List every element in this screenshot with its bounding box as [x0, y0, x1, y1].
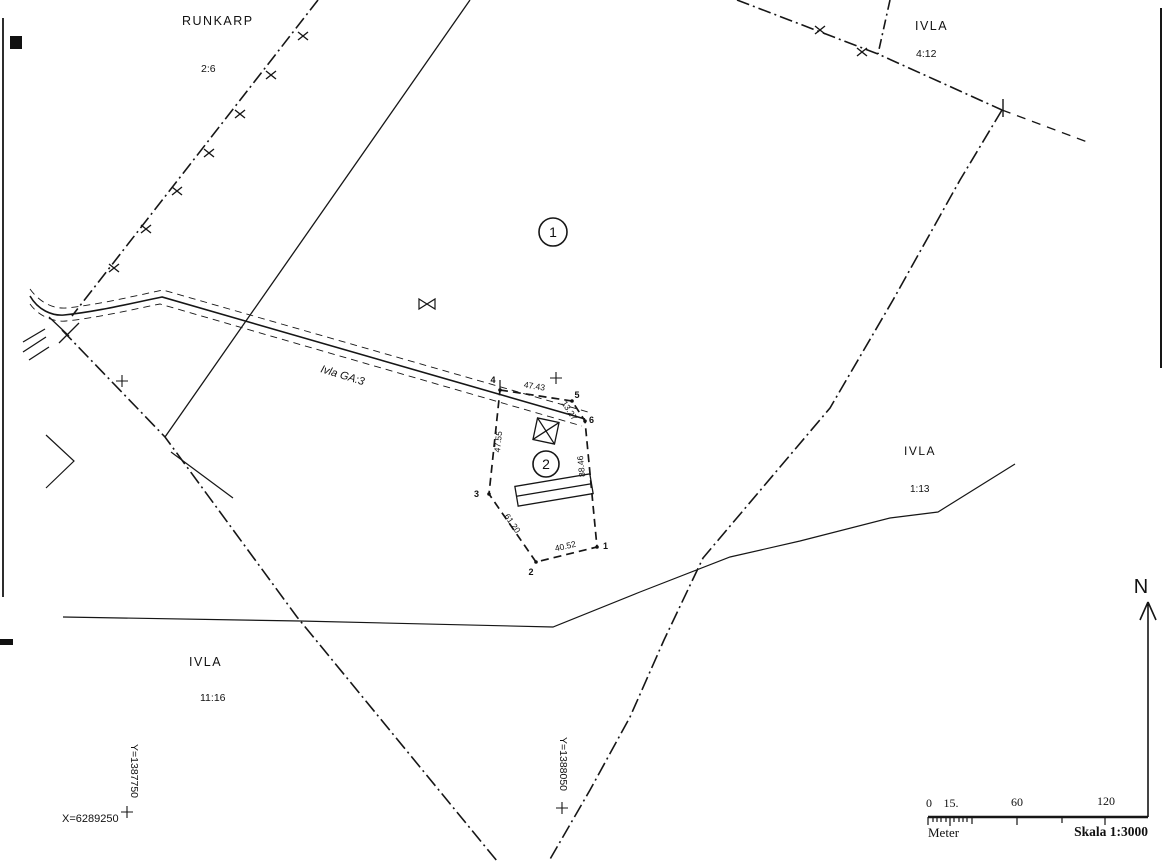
- bowtie-symbol-icon: [419, 299, 435, 309]
- road-edge-south: [30, 304, 582, 426]
- parcel-code-ivla-ne: 4:12: [916, 48, 937, 60]
- vertex-label: 2: [528, 567, 533, 577]
- boundary-east: [549, 110, 1002, 861]
- parcel-code-ivla-sw: 11:16: [200, 692, 226, 704]
- scale-tick-label: 120: [1097, 794, 1115, 808]
- cadastral-map-page: 4 5 6 1 2 3 47.43 13.27 88.46 40.52 61.2…: [0, 0, 1164, 861]
- north-label: N: [1134, 576, 1148, 598]
- edge-length-label: 40.52: [554, 539, 577, 554]
- road-centerline: [30, 296, 585, 419]
- parcel-code-ivla-e: 1:13: [910, 484, 930, 495]
- boundary-northeast-cross-marks: [815, 26, 867, 56]
- scale-tick-label: 60: [1011, 795, 1023, 809]
- edge-length-label: 13.27: [560, 399, 580, 423]
- vertex-label: 1: [603, 541, 608, 551]
- scan-tick: [0, 639, 13, 645]
- edge-length-label: 61.20: [502, 512, 523, 535]
- road-label: Ivla GA:3: [319, 363, 367, 388]
- scan-blob: [10, 36, 22, 49]
- field-line-south: [63, 464, 1015, 627]
- boundary-runkarp: [72, 0, 318, 316]
- vertex-label: 3: [474, 489, 479, 499]
- boundary-continuation-dashed: [1002, 110, 1090, 143]
- boundary-northeast: [737, 0, 1002, 110]
- scale-bar: 0 15. 60 120 Meter Skala 1:3000: [926, 794, 1148, 840]
- scale-unit-label: Meter: [928, 825, 960, 840]
- edge-length-label: 47.55: [492, 430, 504, 452]
- parcel-label-ivla-ne: IVLA: [915, 19, 948, 33]
- boundary-southwest: [62, 330, 497, 861]
- north-arrow: N: [1134, 576, 1156, 817]
- grid-y-east-label: Y=1388050: [557, 737, 569, 791]
- scale-tick-label: 15.: [944, 796, 959, 810]
- well-symbol-icon: [533, 418, 559, 444]
- boundary-northeast-vertical: [878, 0, 890, 54]
- area2-number: 2: [542, 456, 550, 472]
- grid-y-west-label: Y=1387750: [128, 744, 140, 798]
- building-symbol: [515, 474, 593, 506]
- edge-length-label: 47.43: [523, 379, 546, 392]
- north-arrow-icon: [1140, 602, 1156, 817]
- vertex-label: 5: [574, 390, 579, 400]
- parcel-label-runkarp: RUNKARP: [182, 14, 254, 28]
- parcel-code-runkarp: 2:6: [201, 63, 216, 75]
- embankment-icon: [23, 329, 49, 360]
- area1-number: 1: [549, 224, 557, 240]
- parcel-label-ivla-sw: IVLA: [189, 655, 222, 669]
- vertex-label: 4: [490, 375, 495, 385]
- parcel-label-ivla-e: IVLA: [904, 444, 936, 458]
- boundary-parallel-segment: [171, 452, 233, 498]
- vertex-label: 6: [589, 415, 594, 425]
- chevron-mark-icon: [46, 435, 74, 488]
- scale-tick-label: 0: [926, 796, 932, 810]
- grid-x-label: X=6289250: [62, 813, 119, 825]
- cadastral-map: 4 5 6 1 2 3 47.43 13.27 88.46 40.52 61.2…: [0, 0, 1164, 861]
- scale-text-label: Skala 1:3000: [1074, 824, 1148, 839]
